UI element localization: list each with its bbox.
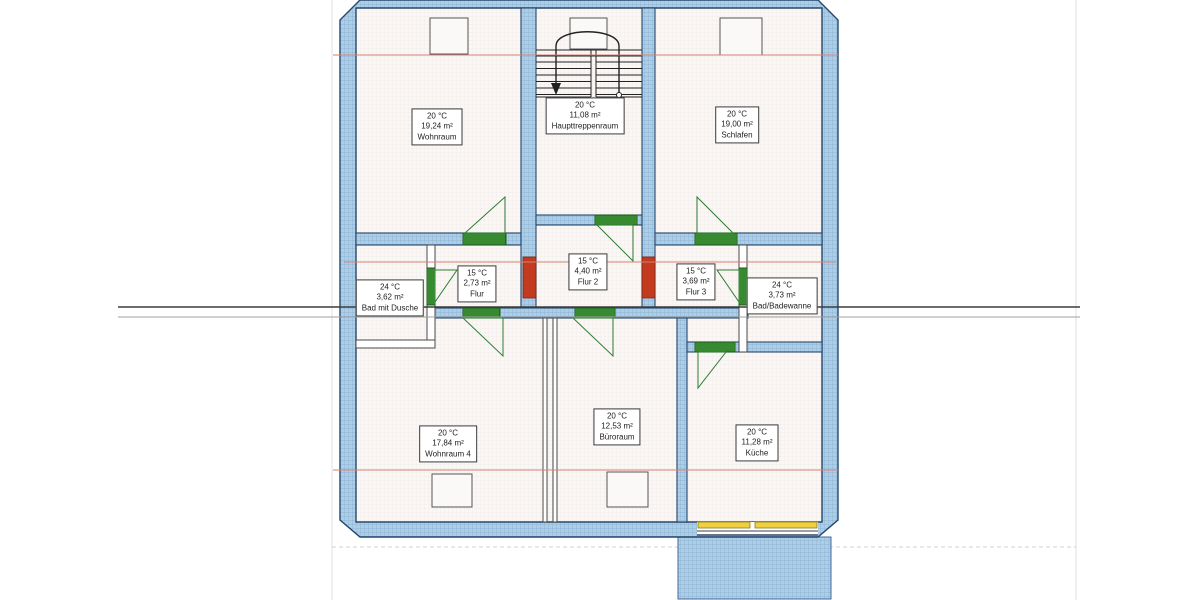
room-area: 11,08 m² bbox=[552, 111, 619, 121]
balcony bbox=[678, 537, 831, 599]
room-area: 4,40 m² bbox=[574, 267, 601, 277]
room-area: 17,84 m² bbox=[425, 439, 471, 449]
room-temperature: 20 °C bbox=[599, 411, 634, 421]
room-area: 2,73 m² bbox=[463, 279, 490, 289]
room-name: Wohnraum bbox=[418, 132, 457, 142]
room-area: 3,69 m² bbox=[682, 277, 709, 287]
room-name: Flur 2 bbox=[574, 277, 601, 287]
room-label-flur-2[interactable]: 15 °C 4,40 m² Flur 2 bbox=[568, 253, 607, 290]
room-label-bueroraum[interactable]: 20 °C 12,53 m² Büroraum bbox=[593, 408, 640, 445]
room-name: Bad mit Dusche bbox=[362, 303, 418, 313]
floor-plan: 20 °C 19,24 m² Wohnraum 20 °C 11,08 m² H… bbox=[0, 0, 1200, 600]
room-temperature: 20 °C bbox=[742, 427, 773, 437]
room-label-flur-3[interactable]: 15 °C 3,69 m² Flur 3 bbox=[676, 263, 715, 300]
room-name: Haupttreppenraum bbox=[552, 121, 619, 131]
room-name: Küche bbox=[742, 448, 773, 458]
room-name: Schlafen bbox=[721, 130, 753, 140]
room-label-wohnraum[interactable]: 20 °C 19,24 m² Wohnraum bbox=[412, 108, 463, 145]
room-temperature: 20 °C bbox=[721, 109, 753, 119]
floor-plan-drawing bbox=[0, 0, 1200, 600]
room-area: 19,24 m² bbox=[418, 122, 457, 132]
room-temperature: 24 °C bbox=[753, 280, 812, 290]
room-label-kueche[interactable]: 20 °C 11,28 m² Küche bbox=[736, 424, 779, 461]
room-label-haupttreppenraum[interactable]: 20 °C 11,08 m² Haupttreppenraum bbox=[546, 97, 625, 134]
room-area: 11,28 m² bbox=[742, 438, 773, 448]
room-temperature: 15 °C bbox=[682, 266, 709, 276]
room-temperature: 20 °C bbox=[418, 111, 457, 121]
room-name: Wohnraum 4 bbox=[425, 449, 471, 459]
room-label-wohnraum-4[interactable]: 20 °C 17,84 m² Wohnraum 4 bbox=[419, 425, 477, 462]
room-temperature: 24 °C bbox=[362, 282, 418, 292]
room-name: Flur 3 bbox=[682, 287, 709, 297]
room-name: Büroraum bbox=[599, 432, 634, 442]
room-temperature: 20 °C bbox=[425, 428, 471, 438]
room-temperature: 15 °C bbox=[463, 268, 490, 278]
room-name: Flur bbox=[463, 289, 490, 299]
room-label-bad-mit-dusche[interactable]: 24 °C 3,62 m² Bad mit Dusche bbox=[356, 279, 424, 316]
room-label-flur[interactable]: 15 °C 2,73 m² Flur bbox=[457, 265, 496, 302]
room-area: 19,00 m² bbox=[721, 120, 753, 130]
room-temperature: 20 °C bbox=[552, 100, 619, 110]
room-area: 3,73 m² bbox=[753, 291, 812, 301]
room-area: 3,62 m² bbox=[362, 293, 418, 303]
room-area: 12,53 m² bbox=[599, 422, 634, 432]
room-name: Bad/Badewanne bbox=[753, 301, 812, 311]
window-markers bbox=[697, 522, 818, 536]
room-label-bad-badewanne[interactable]: 24 °C 3,73 m² Bad/Badewanne bbox=[747, 277, 818, 314]
room-label-schlafen[interactable]: 20 °C 19,00 m² Schlafen bbox=[715, 106, 759, 143]
room-temperature: 15 °C bbox=[574, 256, 601, 266]
